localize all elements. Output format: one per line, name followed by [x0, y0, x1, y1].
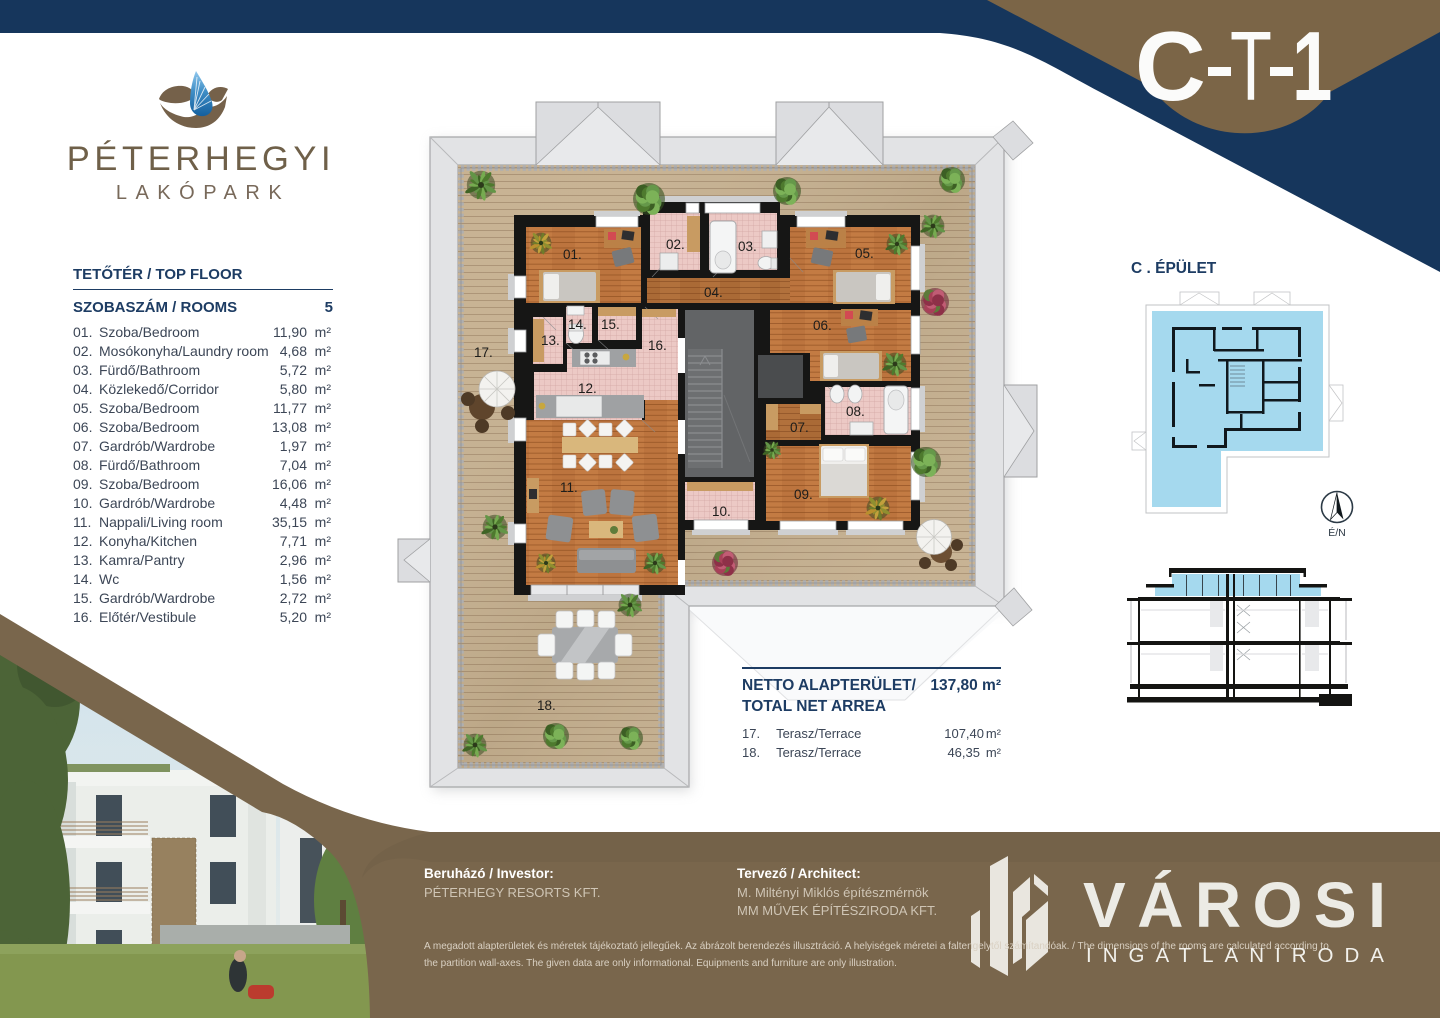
svg-text:07.: 07.	[790, 420, 809, 435]
svg-text:17.: 17.	[474, 345, 493, 360]
svg-text:É/N: É/N	[1328, 526, 1346, 539]
svg-text:15.: 15.	[601, 317, 620, 332]
svg-text:12.: 12.	[578, 381, 597, 396]
svg-text:03.: 03.	[738, 239, 757, 254]
svg-text:14.: 14.	[568, 317, 587, 332]
svg-text:16.: 16.	[648, 338, 667, 353]
svg-text:01.: 01.	[563, 247, 582, 262]
svg-text:11.: 11.	[560, 480, 578, 495]
svg-text:09.: 09.	[794, 487, 813, 502]
svg-text:10.: 10.	[712, 504, 731, 519]
svg-text:08.: 08.	[846, 404, 865, 419]
svg-text:05.: 05.	[855, 246, 874, 261]
svg-text:18.: 18.	[537, 698, 556, 713]
svg-text:13.: 13.	[541, 333, 560, 348]
svg-text:02.: 02.	[666, 237, 685, 252]
svg-text:06.: 06.	[813, 318, 832, 333]
svg-text:04.: 04.	[704, 285, 723, 300]
